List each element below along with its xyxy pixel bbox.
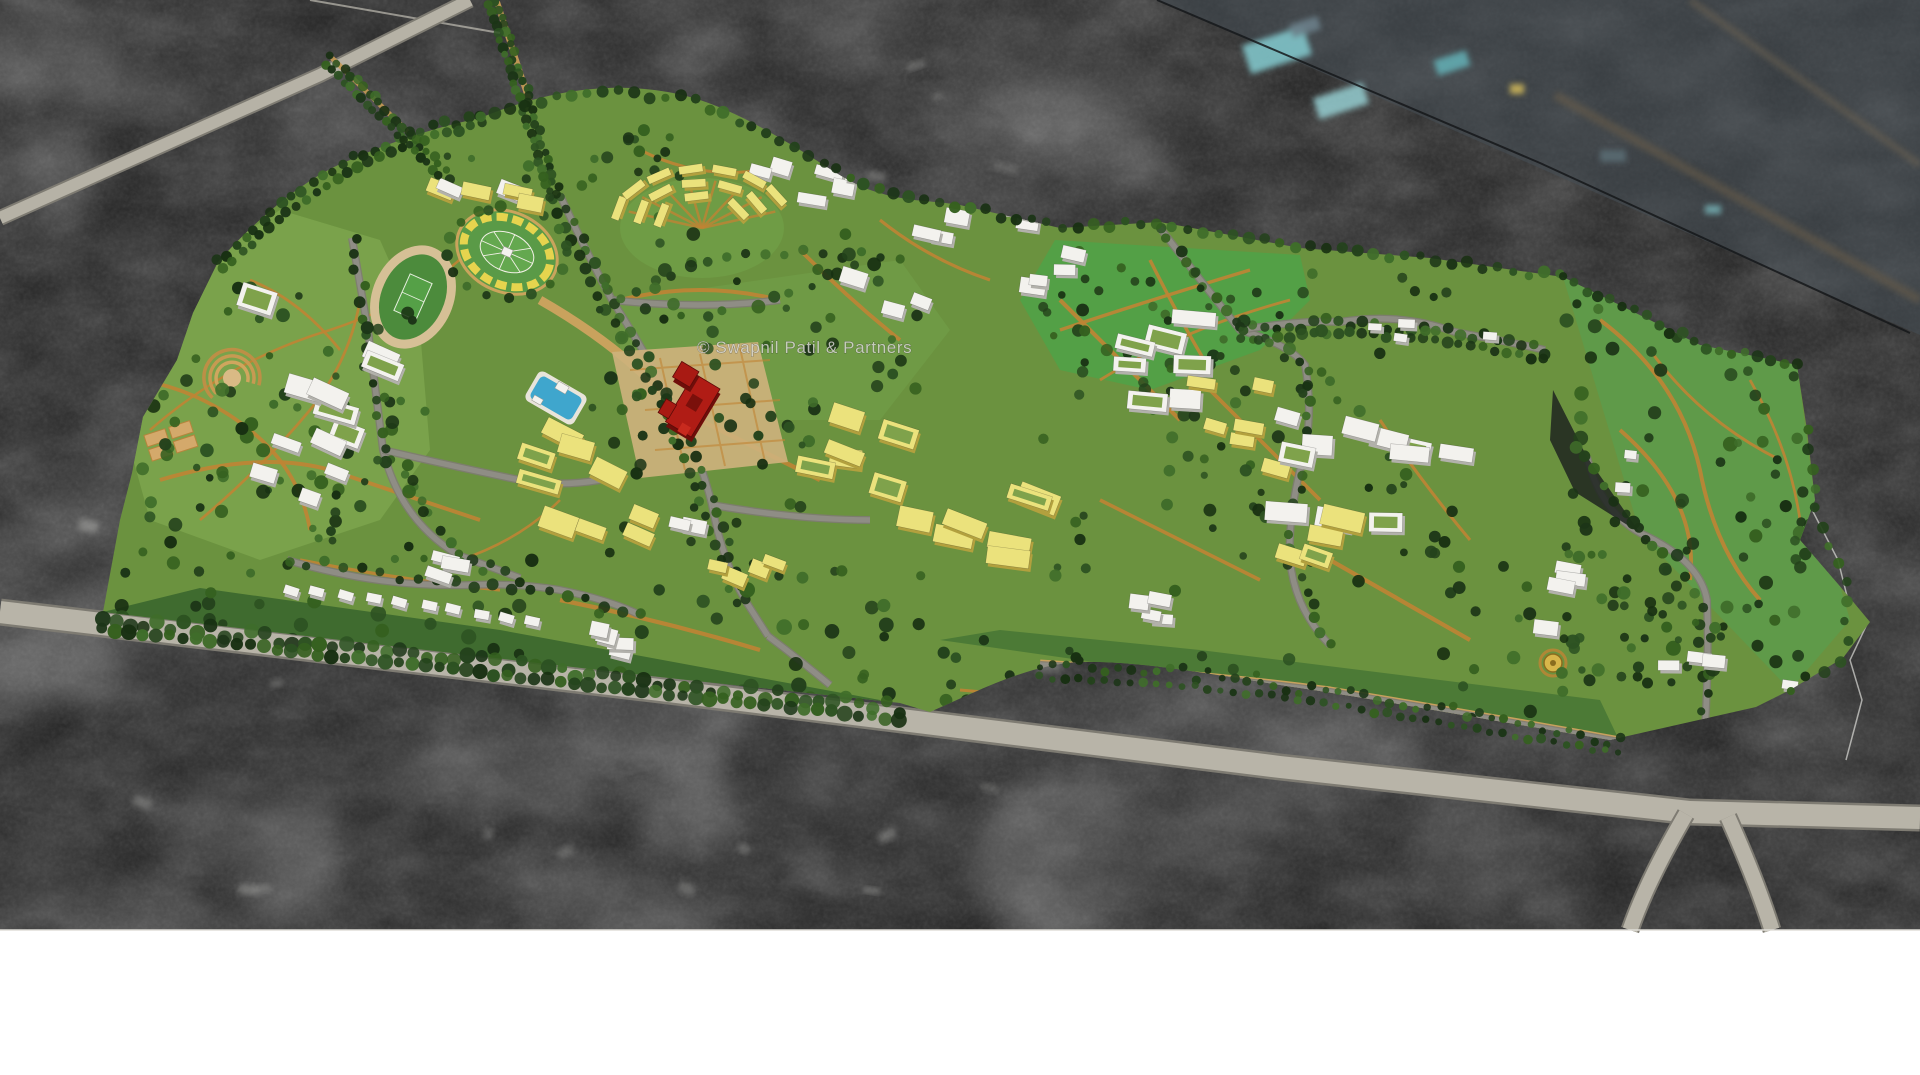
tree-icon bbox=[635, 684, 650, 699]
tree-icon bbox=[352, 234, 362, 244]
tree-icon bbox=[1166, 682, 1173, 689]
tree-icon bbox=[1255, 689, 1263, 697]
tree-icon bbox=[1397, 273, 1407, 283]
tree-icon bbox=[632, 391, 642, 401]
tree-icon bbox=[1598, 550, 1607, 559]
tree-icon bbox=[1121, 217, 1129, 225]
tree-icon bbox=[1498, 561, 1509, 572]
tree-icon bbox=[717, 693, 728, 704]
tree-icon bbox=[1217, 352, 1225, 360]
building-top bbox=[682, 179, 706, 188]
tree-icon bbox=[536, 97, 548, 109]
tree-icon bbox=[1203, 685, 1212, 694]
tree-icon bbox=[1347, 686, 1355, 694]
tree-icon bbox=[780, 251, 788, 259]
tree-icon bbox=[1807, 464, 1819, 476]
tree-icon bbox=[1589, 747, 1596, 754]
tree-icon bbox=[1647, 541, 1657, 551]
tree-icon bbox=[1680, 572, 1690, 582]
tree-icon bbox=[1596, 593, 1607, 604]
tree-icon bbox=[1284, 530, 1293, 539]
tree-icon bbox=[371, 606, 387, 622]
tree-icon bbox=[419, 658, 433, 672]
tree-icon bbox=[1204, 504, 1217, 517]
tree-icon bbox=[617, 404, 628, 415]
tree-icon bbox=[1238, 315, 1251, 328]
tree-icon bbox=[850, 260, 859, 269]
tree-icon bbox=[366, 654, 378, 666]
tree-icon bbox=[711, 507, 721, 517]
tree-icon bbox=[1641, 634, 1649, 642]
masterplan-screenshot: © Swapnil Patil & Partners bbox=[0, 0, 1920, 1075]
tree-icon bbox=[795, 501, 807, 513]
tree-icon bbox=[1514, 720, 1521, 727]
tree-icon bbox=[345, 82, 355, 92]
tree-icon bbox=[478, 567, 487, 576]
tree-icon bbox=[436, 526, 446, 536]
white-building bbox=[1173, 355, 1214, 378]
tree-icon bbox=[512, 599, 526, 613]
tree-icon bbox=[1281, 694, 1289, 702]
tree-icon bbox=[342, 167, 353, 178]
tree-icon bbox=[1509, 268, 1517, 276]
tree-icon bbox=[842, 248, 856, 262]
tree-icon bbox=[1600, 482, 1609, 491]
tree-icon bbox=[774, 136, 784, 146]
tree-icon bbox=[372, 396, 381, 405]
tree-icon bbox=[369, 379, 377, 387]
building-top bbox=[1398, 319, 1415, 328]
tree-icon bbox=[205, 587, 216, 598]
tree-icon bbox=[326, 526, 336, 536]
tree-icon bbox=[1306, 696, 1315, 705]
tree-icon bbox=[1840, 617, 1848, 625]
tree-icon bbox=[1608, 600, 1619, 611]
tree-icon bbox=[744, 696, 757, 709]
tree-icon bbox=[1752, 640, 1764, 652]
tree-icon bbox=[1715, 347, 1723, 355]
tree-icon bbox=[373, 324, 384, 335]
tree-icon bbox=[1574, 411, 1588, 425]
tree-icon bbox=[293, 403, 301, 411]
tree-icon bbox=[1243, 232, 1256, 245]
tree-icon bbox=[853, 711, 864, 722]
tree-icon bbox=[946, 680, 956, 690]
tree-icon bbox=[272, 645, 283, 656]
tree-icon bbox=[1239, 552, 1247, 560]
tree-icon bbox=[589, 404, 597, 412]
tree-icon bbox=[597, 86, 609, 98]
tree-icon bbox=[546, 280, 555, 289]
tree-icon bbox=[1209, 524, 1217, 532]
tree-icon bbox=[169, 518, 183, 532]
tree-icon bbox=[654, 155, 662, 163]
tree-icon bbox=[1789, 371, 1799, 381]
tree-icon bbox=[1790, 536, 1800, 546]
tree-icon bbox=[1230, 674, 1239, 683]
tree-icon bbox=[1617, 302, 1626, 311]
white-building bbox=[1169, 388, 1204, 412]
tree-icon bbox=[1226, 295, 1235, 304]
tree-icon bbox=[1181, 257, 1191, 267]
tree-icon bbox=[812, 264, 823, 275]
tree-icon bbox=[753, 431, 763, 441]
tree-icon bbox=[1489, 715, 1496, 722]
tree-icon bbox=[1437, 702, 1445, 710]
tree-icon bbox=[608, 681, 621, 694]
tree-icon bbox=[820, 159, 829, 168]
tree-icon bbox=[965, 202, 977, 214]
tree-icon bbox=[216, 466, 228, 478]
tree-icon bbox=[523, 160, 534, 171]
tree-icon bbox=[624, 345, 635, 356]
tree-icon bbox=[1563, 741, 1570, 748]
tree-icon bbox=[1442, 337, 1454, 349]
tree-icon bbox=[360, 281, 370, 291]
tree-icon bbox=[309, 525, 316, 532]
tree-icon bbox=[757, 459, 768, 470]
tree-icon bbox=[596, 683, 607, 694]
tree-icon bbox=[1677, 327, 1689, 339]
tree-icon bbox=[323, 182, 331, 190]
tree-icon bbox=[217, 635, 230, 648]
tree-icon bbox=[1654, 320, 1664, 330]
tree-icon bbox=[1623, 574, 1632, 583]
tree-icon bbox=[443, 166, 450, 173]
tree-icon bbox=[441, 249, 453, 261]
tree-icon bbox=[1616, 733, 1626, 743]
tree-icon bbox=[1490, 347, 1499, 356]
tree-icon bbox=[1197, 227, 1209, 239]
tree-icon bbox=[1166, 222, 1176, 232]
tree-icon bbox=[632, 339, 640, 347]
tree-icon bbox=[1523, 607, 1536, 620]
tree-icon bbox=[616, 294, 625, 303]
tree-icon bbox=[1074, 674, 1082, 682]
tree-icon bbox=[525, 554, 538, 567]
tree-icon bbox=[177, 633, 188, 644]
tree-icon bbox=[1114, 664, 1122, 672]
tree-icon bbox=[307, 470, 317, 480]
tree-icon bbox=[718, 521, 729, 532]
tree-icon bbox=[608, 437, 620, 449]
tree-icon bbox=[1076, 304, 1089, 317]
tree-icon bbox=[622, 670, 636, 684]
tree-icon bbox=[420, 555, 427, 562]
tree-icon bbox=[703, 311, 713, 321]
tree-icon bbox=[1486, 729, 1493, 736]
tree-icon bbox=[391, 555, 399, 563]
tree-icon bbox=[1792, 650, 1804, 662]
tree-icon bbox=[1750, 390, 1762, 402]
tree-icon bbox=[1302, 412, 1311, 421]
tree-icon bbox=[254, 230, 264, 240]
tree-icon bbox=[1716, 457, 1726, 467]
tree-icon bbox=[661, 94, 669, 102]
building-courtyard bbox=[1178, 359, 1206, 370]
tree-icon bbox=[585, 276, 596, 287]
tree-icon bbox=[1842, 577, 1851, 586]
tree-icon bbox=[685, 468, 696, 479]
tree-icon bbox=[1461, 723, 1467, 729]
tree-icon bbox=[339, 636, 354, 651]
tree-icon bbox=[570, 218, 578, 226]
tree-icon bbox=[580, 677, 596, 693]
tree-icon bbox=[386, 146, 397, 157]
tree-icon bbox=[733, 277, 741, 285]
tree-icon bbox=[1575, 633, 1585, 643]
tree-icon bbox=[630, 467, 642, 479]
tree-icon bbox=[649, 685, 662, 698]
tree-icon bbox=[313, 188, 321, 196]
tree-icon bbox=[401, 470, 409, 478]
tree-icon bbox=[791, 678, 806, 693]
tree-icon bbox=[1422, 716, 1429, 723]
tree-icon bbox=[1298, 573, 1306, 581]
tree-icon bbox=[1126, 665, 1136, 675]
tree-icon bbox=[1620, 633, 1629, 642]
tree-icon bbox=[1416, 251, 1424, 259]
tree-icon bbox=[506, 584, 518, 596]
tree-icon bbox=[120, 568, 130, 578]
tree-icon bbox=[528, 673, 541, 686]
tree-icon bbox=[357, 563, 367, 573]
tree-icon bbox=[256, 443, 270, 457]
tree-icon bbox=[648, 386, 657, 395]
tree-icon bbox=[190, 601, 201, 612]
tree-icon bbox=[482, 291, 490, 299]
tree-icon bbox=[1833, 558, 1844, 569]
tree-icon bbox=[280, 207, 291, 218]
tree-icon bbox=[1689, 588, 1700, 599]
tree-icon bbox=[329, 537, 337, 545]
tree-icon bbox=[516, 655, 527, 666]
tree-icon bbox=[1357, 316, 1369, 328]
tree-icon bbox=[1525, 272, 1533, 280]
tree-icon bbox=[1037, 664, 1043, 670]
building-top bbox=[1054, 264, 1076, 275]
tree-icon bbox=[605, 548, 615, 558]
tree-icon bbox=[245, 639, 256, 650]
tree-icon bbox=[326, 52, 334, 60]
tree-icon bbox=[1385, 699, 1395, 709]
tree-icon bbox=[1448, 722, 1455, 729]
tree-icon bbox=[276, 308, 290, 322]
tree-icon bbox=[872, 361, 884, 373]
tree-icon bbox=[374, 111, 383, 120]
tree-icon bbox=[1073, 222, 1084, 233]
tree-icon bbox=[1757, 436, 1769, 448]
tree-icon bbox=[557, 264, 568, 275]
tree-icon bbox=[867, 711, 877, 721]
tree-icon bbox=[617, 607, 628, 618]
tree-icon bbox=[1773, 455, 1782, 464]
building-top bbox=[1624, 450, 1637, 460]
tree-icon bbox=[392, 642, 407, 657]
tree-icon bbox=[1042, 217, 1051, 226]
tree-icon bbox=[424, 618, 436, 630]
tree-icon bbox=[190, 632, 203, 645]
tree-icon bbox=[757, 698, 770, 711]
tree-icon bbox=[1446, 259, 1457, 270]
building-courtyard bbox=[1374, 516, 1398, 528]
tree-icon bbox=[765, 411, 776, 422]
tree-icon bbox=[743, 679, 758, 694]
tree-icon bbox=[398, 143, 407, 152]
tree-icon bbox=[1466, 341, 1476, 351]
tree-icon bbox=[361, 478, 368, 485]
tree-icon bbox=[1697, 707, 1705, 715]
tree-icon bbox=[1591, 738, 1599, 746]
tree-icon bbox=[679, 453, 689, 463]
tree-icon bbox=[783, 305, 790, 312]
tree-icon bbox=[859, 670, 869, 680]
tree-icon bbox=[1458, 681, 1468, 691]
tree-icon bbox=[891, 712, 907, 728]
tree-icon bbox=[1431, 326, 1441, 336]
tree-icon bbox=[951, 652, 962, 663]
tree-icon bbox=[412, 135, 422, 145]
tree-icon bbox=[810, 322, 821, 333]
tree-icon bbox=[557, 663, 567, 673]
tree-icon bbox=[499, 14, 507, 22]
tree-icon bbox=[461, 629, 476, 644]
tree-icon bbox=[1337, 242, 1348, 253]
tree-icon bbox=[1077, 366, 1088, 377]
tree-icon bbox=[285, 557, 295, 567]
tree-icon bbox=[314, 475, 328, 489]
tree-icon bbox=[1642, 310, 1652, 320]
tree-icon bbox=[418, 496, 427, 505]
tree-icon bbox=[784, 289, 793, 298]
tree-icon bbox=[789, 657, 803, 671]
tree-icon bbox=[1593, 304, 1603, 314]
tree-icon bbox=[979, 635, 989, 645]
tree-icon bbox=[566, 90, 578, 102]
tree-icon bbox=[1657, 547, 1668, 558]
tree-icon bbox=[857, 247, 866, 256]
tree-icon bbox=[138, 547, 147, 556]
tree-icon bbox=[1254, 335, 1263, 344]
tree-icon bbox=[442, 127, 452, 137]
tree-icon bbox=[396, 397, 405, 406]
tree-icon bbox=[1319, 698, 1327, 706]
tree-icon bbox=[1050, 332, 1057, 339]
tree-icon bbox=[1399, 702, 1407, 710]
tree-icon bbox=[1136, 220, 1145, 229]
tree-icon bbox=[328, 65, 336, 73]
tree-icon bbox=[1661, 622, 1672, 633]
tree-icon bbox=[459, 662, 474, 677]
tree-icon bbox=[1803, 425, 1813, 435]
tree-icon bbox=[1615, 749, 1621, 755]
tree-icon bbox=[1667, 678, 1675, 686]
tree-icon bbox=[675, 89, 687, 101]
tree-icon bbox=[1295, 358, 1304, 367]
tree-icon bbox=[523, 123, 530, 130]
tree-icon bbox=[798, 703, 811, 716]
tree-icon bbox=[677, 312, 685, 320]
tree-icon bbox=[476, 650, 488, 662]
tree-icon bbox=[457, 218, 466, 227]
tree-icon bbox=[453, 126, 465, 138]
tree-icon bbox=[896, 254, 905, 263]
tree-icon bbox=[332, 372, 339, 379]
tree-icon bbox=[574, 250, 585, 261]
tree-icon bbox=[381, 444, 390, 453]
tree-icon bbox=[266, 352, 273, 359]
tree-icon bbox=[407, 475, 418, 486]
tree-icon bbox=[1570, 441, 1583, 454]
tree-icon bbox=[1800, 672, 1810, 682]
tree-icon bbox=[1507, 651, 1520, 664]
tree-icon bbox=[1197, 284, 1205, 292]
tree-icon bbox=[312, 649, 324, 661]
tree-icon bbox=[1796, 517, 1806, 527]
tree-icon bbox=[376, 568, 385, 577]
tree-icon bbox=[879, 618, 894, 633]
tree-icon bbox=[593, 291, 603, 301]
tree-icon bbox=[677, 690, 687, 700]
tree-icon bbox=[1588, 319, 1602, 333]
tree-icon bbox=[1538, 266, 1551, 279]
tree-icon bbox=[771, 698, 783, 710]
tree-icon bbox=[1522, 581, 1533, 592]
tree-icon bbox=[1396, 713, 1405, 722]
tree-icon bbox=[847, 174, 855, 182]
tree-icon bbox=[1140, 670, 1147, 677]
tree-icon bbox=[446, 537, 457, 548]
tree-icon bbox=[1269, 682, 1277, 690]
tree-icon bbox=[690, 482, 699, 491]
tree-icon bbox=[562, 205, 571, 214]
tree-icon bbox=[1627, 643, 1636, 652]
tree-icon bbox=[667, 298, 680, 311]
tree-icon bbox=[568, 678, 581, 691]
tree-icon bbox=[1161, 233, 1170, 242]
tree-icon bbox=[1811, 484, 1821, 494]
tree-icon bbox=[224, 307, 233, 316]
building-top bbox=[1615, 482, 1631, 493]
tree-icon bbox=[1454, 340, 1462, 348]
tree-icon bbox=[1675, 494, 1689, 508]
tree-icon bbox=[1321, 313, 1332, 324]
tree-icon bbox=[562, 590, 574, 602]
tree-icon bbox=[374, 151, 385, 162]
tree-icon bbox=[717, 306, 726, 315]
tree-icon bbox=[1574, 386, 1588, 400]
tree-icon bbox=[1315, 324, 1328, 337]
tree-icon bbox=[1441, 287, 1451, 297]
tree-icon bbox=[840, 691, 853, 704]
tree-icon bbox=[632, 359, 643, 370]
building-top bbox=[1533, 619, 1559, 636]
tree-icon bbox=[610, 671, 621, 682]
tree-icon bbox=[361, 321, 374, 334]
tree-icon bbox=[768, 291, 780, 303]
tree-icon bbox=[1332, 703, 1339, 710]
tree-icon bbox=[423, 158, 431, 166]
tree-icon bbox=[215, 383, 229, 397]
tree-icon bbox=[473, 664, 488, 679]
tree-icon bbox=[204, 619, 218, 633]
tree-icon bbox=[1620, 601, 1629, 610]
tree-icon bbox=[215, 505, 228, 518]
tree-icon bbox=[1575, 741, 1584, 750]
tree-icon bbox=[785, 498, 796, 509]
tree-icon bbox=[1075, 656, 1084, 665]
tree-icon bbox=[176, 615, 191, 630]
